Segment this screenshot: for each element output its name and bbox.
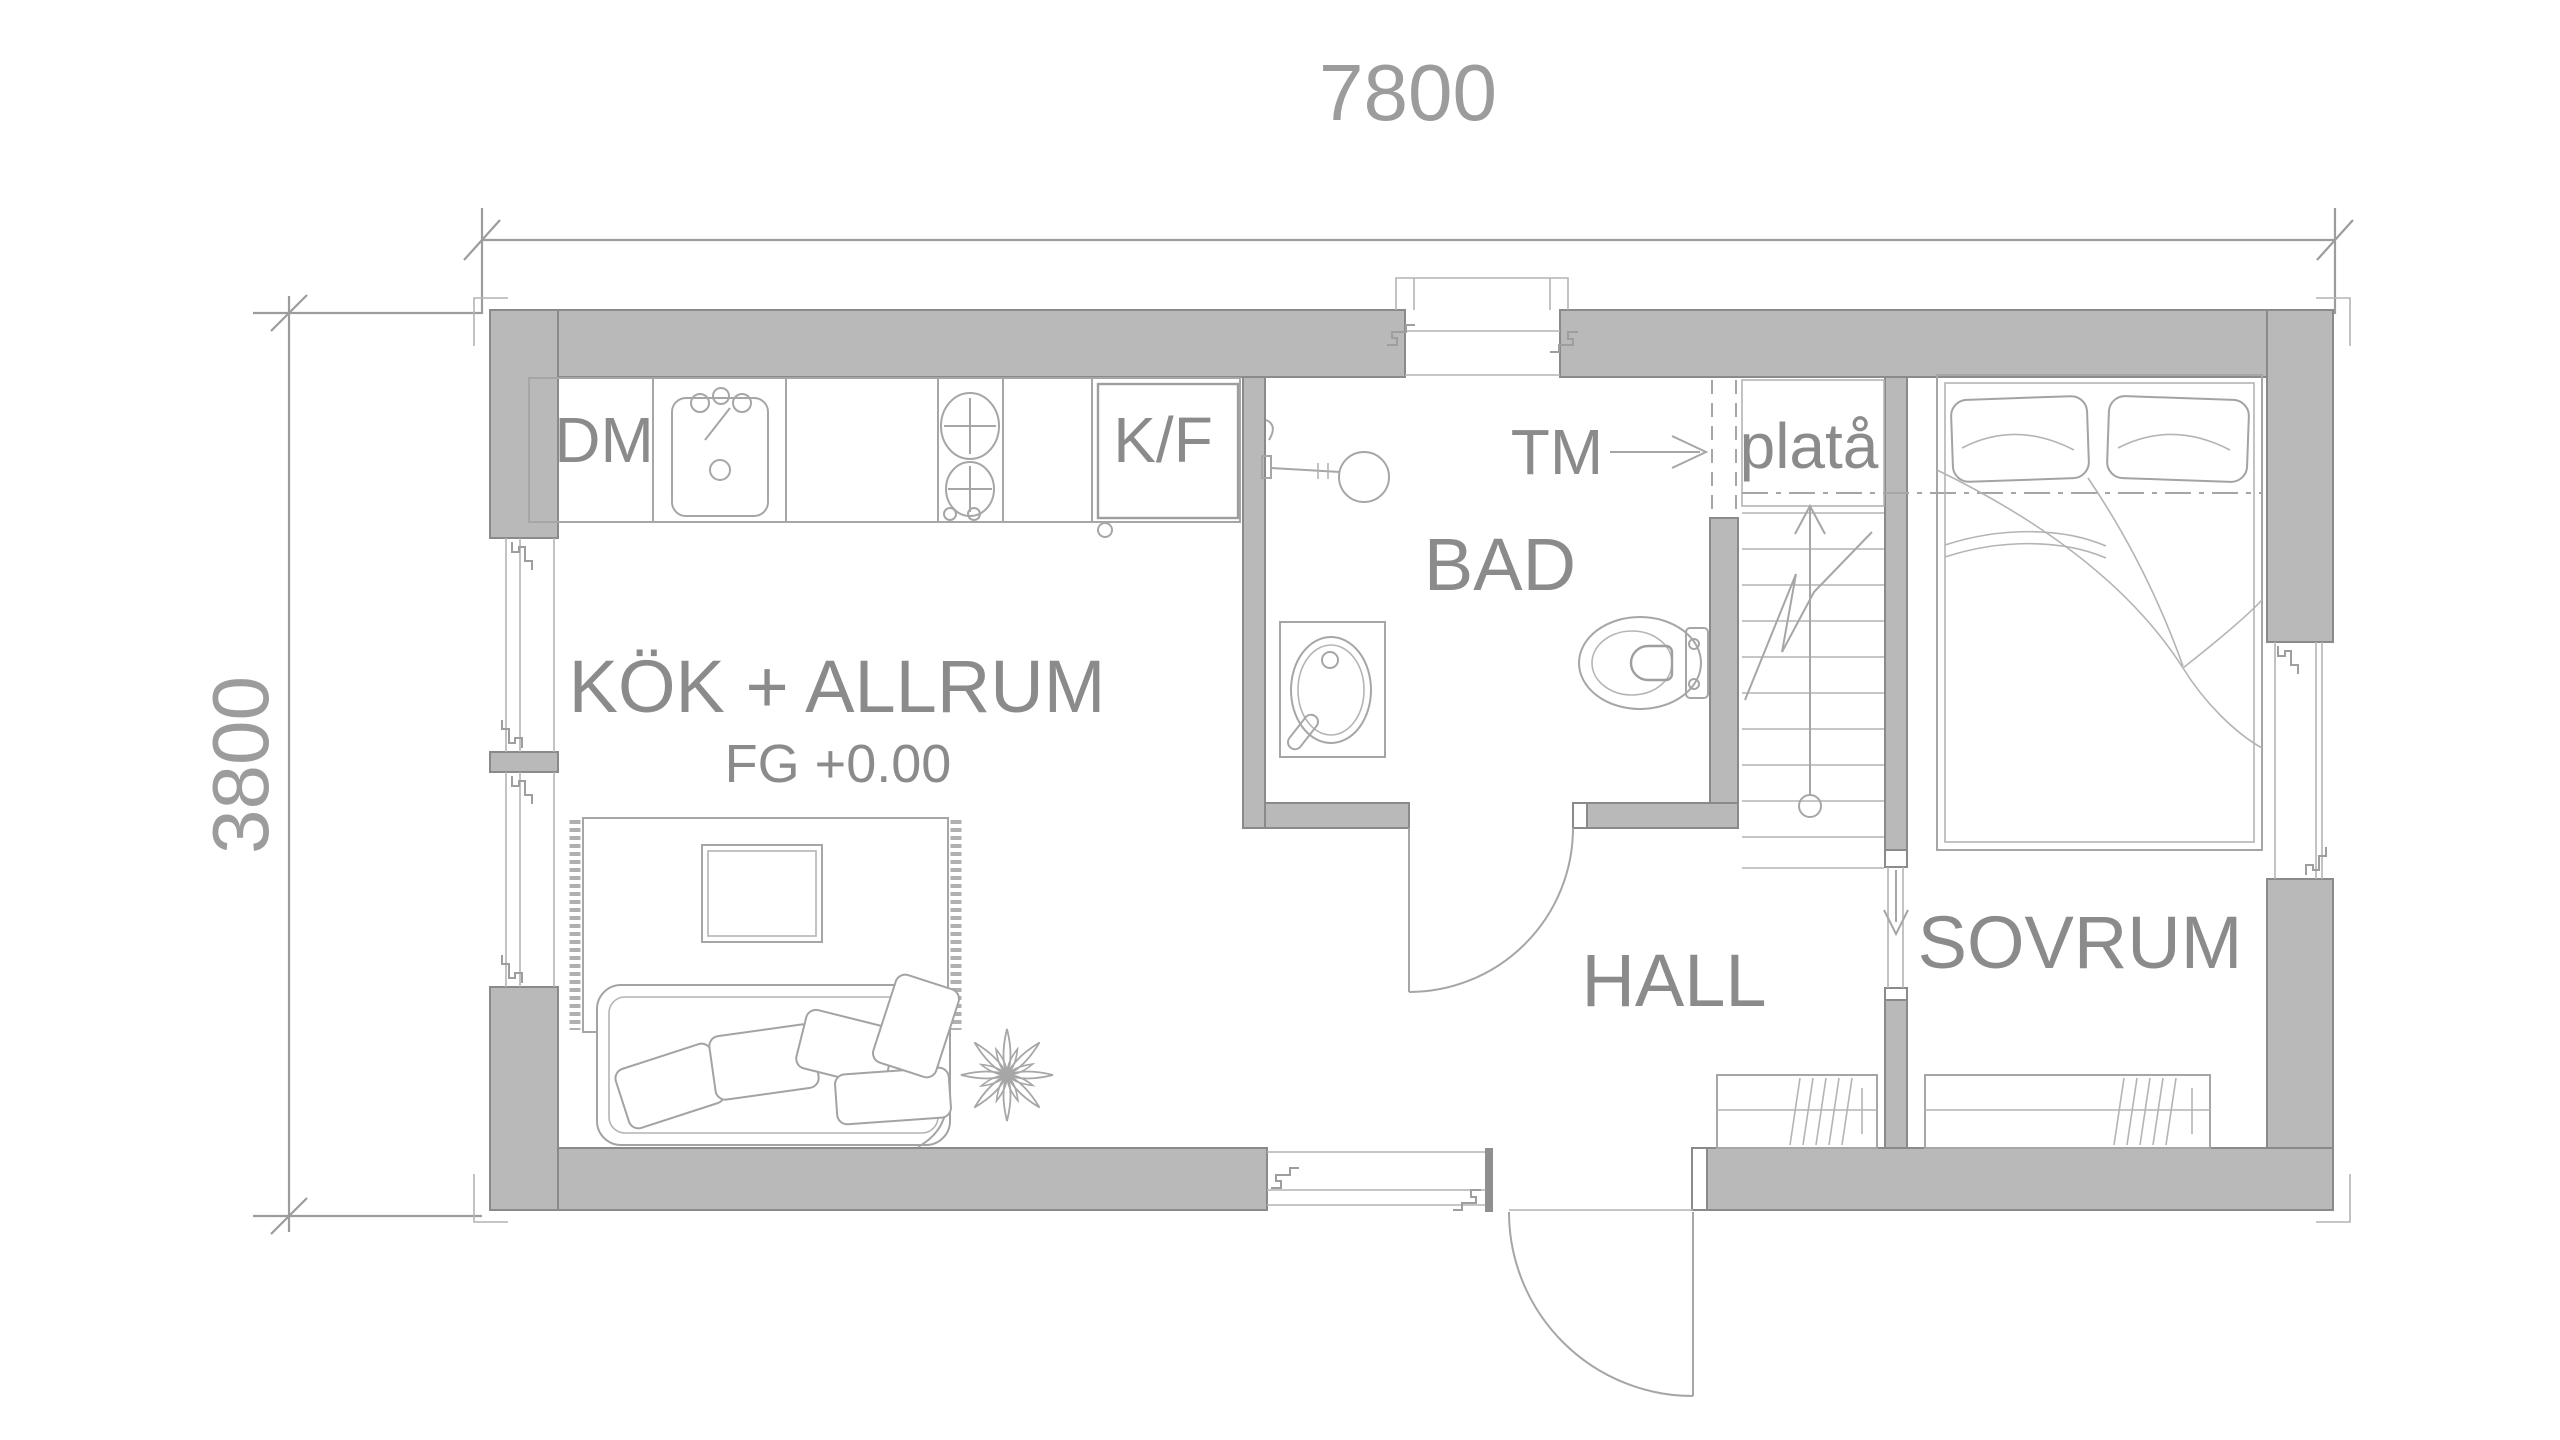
stair-treads	[1742, 513, 1884, 868]
sofa	[597, 972, 962, 1147]
bathroom-label: BAD	[1424, 523, 1576, 606]
bed	[1937, 375, 2262, 850]
kitchen-sink	[672, 388, 768, 516]
bottom-wall-window	[1267, 1152, 1485, 1210]
floor-plan-page: 7800 3800	[0, 0, 2560, 1440]
bedroom-wardrobe	[1925, 1075, 2210, 1148]
bathroom: BAD TM	[1262, 416, 1708, 757]
dishwasher-label: DM	[554, 404, 654, 476]
landing-label: platå	[1740, 410, 1879, 482]
fridge-freezer-label: K/F	[1113, 404, 1213, 476]
toilet	[1579, 617, 1708, 709]
washing-machine-label: TM	[1511, 416, 1603, 488]
floor-plan-drawing: 7800 3800	[0, 0, 2560, 1440]
entry-door	[1509, 1210, 1693, 1396]
stair-direction	[1745, 506, 1872, 817]
bath-door	[1409, 828, 1573, 992]
washing-machine-callout: TM	[1511, 416, 1706, 488]
blanket	[1937, 470, 2262, 748]
coffee-table	[702, 845, 822, 942]
dimension-top: 7800	[464, 48, 2353, 314]
hall: HALL	[1581, 939, 1877, 1148]
hall-wardrobe	[1717, 1075, 1877, 1148]
left-wall-window-lower	[502, 772, 554, 987]
hall-label: HALL	[1581, 939, 1766, 1022]
washbasin	[1280, 622, 1385, 757]
dimension-depth-label: 3800	[196, 676, 285, 854]
bedroom: SOVRUM	[1918, 375, 2262, 1148]
right-wall-window	[2275, 642, 2326, 879]
kitchen-counter: DM K/F	[529, 378, 1240, 537]
bedroom-label: SOVRUM	[1918, 901, 2243, 984]
kitchen-living-label: KÖK + ALLRUM	[569, 645, 1106, 728]
plant	[961, 1029, 1053, 1121]
kitchen-stove	[941, 393, 999, 520]
shower-head	[1262, 420, 1389, 502]
floor-level-label: FG +0.00	[725, 734, 952, 794]
dimension-width-label: 7800	[1319, 48, 1497, 137]
dimension-left: 3800	[196, 295, 482, 1234]
living-room: KÖK + ALLRUM FG +0.00	[569, 645, 1106, 1147]
left-wall-window-upper	[502, 538, 554, 752]
bath-north-door-opening	[1387, 278, 1578, 375]
